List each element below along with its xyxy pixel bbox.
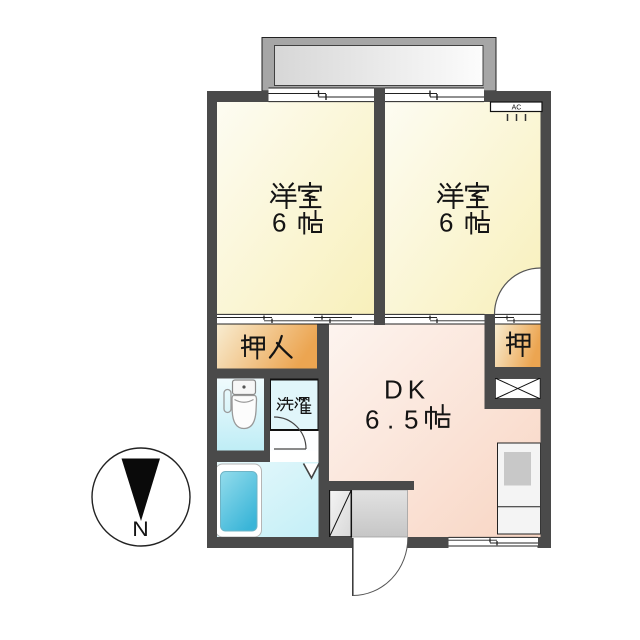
svg-text:DK: DK [384,375,430,405]
svg-text:6: 6 [439,208,453,238]
svg-text:.: . [387,404,394,434]
svg-text:6: 6 [272,208,286,238]
svg-text:5: 5 [404,404,418,434]
svg-text:6: 6 [365,404,379,434]
svg-text:N: N [132,517,149,541]
svg-text:AC: AC [512,105,522,112]
